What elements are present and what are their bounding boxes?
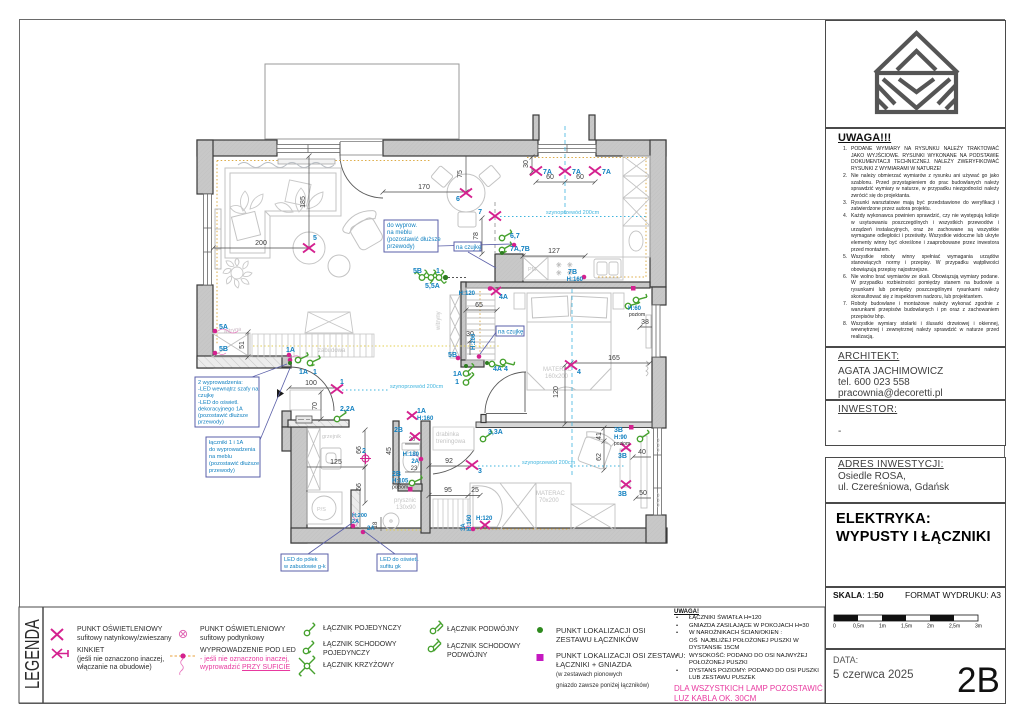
svg-text:30: 30 [523,160,530,168]
svg-text:do wyprow.: do wyprow. [387,223,417,229]
svg-text:51: 51 [239,341,246,349]
svg-text:66: 66 [356,483,363,491]
svg-text:1: 1 [340,379,344,386]
svg-text:1: 1 [436,268,440,275]
svg-text:2B: 2B [392,471,401,478]
svg-text:łączniki 1 i 1A: łączniki 1 i 1A [209,440,243,446]
svg-text:2m: 2m [927,624,934,630]
svg-text:5B: 5B [448,352,457,359]
svg-text:H:160: H:160 [417,416,434,422]
svg-text:czujkę: czujkę [198,393,214,399]
svg-text:4A: 4A [493,366,502,373]
svg-text:50: 50 [639,490,647,497]
svg-text:na czujkę: na czujkę [456,245,482,251]
svg-text:1A: 1A [417,408,426,415]
svg-text:1A: 1A [299,369,308,376]
svg-text:H:200: H:200 [471,333,477,350]
svg-text:1A: 1A [453,371,462,378]
svg-text:H:160: H:160 [567,277,584,283]
svg-text:(pozostawić dłuższe: (pozostawić dłuższe [198,413,248,419]
svg-text:2 wyprowadzenia:: 2 wyprowadzenia: [198,380,243,386]
svg-text:7A,7B: 7A,7B [510,246,530,253]
svg-text:1A: 1A [286,347,295,354]
svg-text:170: 170 [418,184,430,191]
svg-text:drabinka: drabinka [436,432,460,438]
svg-text:w zabudowie g-k: w zabudowie g-k [283,564,326,570]
svg-text:185: 185 [300,196,307,208]
svg-text:2A: 2A [352,519,359,525]
svg-text:LEGENDA: LEGENDA [21,619,44,689]
svg-text:P/S: P/S [317,507,326,513]
svg-text:120: 120 [553,386,560,398]
svg-text:przewody): przewody) [387,244,415,250]
svg-text:4A: 4A [499,294,508,301]
svg-text:H:120: H:120 [476,516,493,522]
svg-text:na meblu: na meblu [387,230,412,236]
svg-text:2,5m: 2,5m [949,624,960,630]
svg-text:45: 45 [386,447,393,455]
svg-text:5: 5 [313,235,317,242]
svg-text:7A: 7A [572,169,581,176]
svg-text:szynoprzewód 200cm: szynoprzewód 200cm [546,210,600,216]
svg-text:zabudowa: zabudowa [318,348,346,354]
svg-text:3,3A: 3,3A [488,429,503,436]
svg-text:7A: 7A [543,169,552,176]
svg-text:0: 0 [833,624,836,630]
svg-text:H:120: H:120 [459,291,476,297]
svg-text:4: 4 [577,369,581,376]
svg-text:przewody): przewody) [209,468,235,474]
svg-text:na meblu: na meblu [209,454,232,460]
svg-text:2B: 2B [394,427,403,434]
svg-text:125: 125 [330,459,342,466]
svg-text:7B: 7B [568,269,577,276]
svg-text:szynoprzewód 200cm: szynoprzewód 200cm [522,460,576,466]
svg-text:38: 38 [641,319,649,326]
svg-text:7: 7 [478,209,482,216]
svg-text:23: 23 [411,466,418,472]
svg-text:70: 70 [312,402,319,410]
svg-text:1,5m: 1,5m [901,624,912,630]
svg-text:127: 127 [548,248,560,255]
svg-text:H:160: H:160 [467,514,473,531]
svg-text:treningowa: treningowa [436,439,466,445]
svg-text:poziom: poziom [629,312,645,318]
svg-text:3m: 3m [975,624,982,630]
svg-text:1: 1 [313,369,317,376]
svg-text:H:180: H:180 [403,452,420,458]
svg-text:4: 4 [504,366,508,373]
svg-text:200: 200 [255,240,267,247]
svg-text:3B: 3B [618,491,627,498]
svg-text:(pozostawić dłuższe: (pozostawić dłuższe [387,237,441,243]
svg-text:1m: 1m [879,624,886,630]
svg-text:2A: 2A [411,459,419,465]
svg-text:3B: 3B [618,453,627,460]
svg-text:LED do oświetl.: LED do oświetl. [380,557,419,563]
svg-text:prysznic: prysznic [394,498,416,504]
svg-text:LED do półek: LED do półek [284,557,318,563]
svg-text:na czujkę: na czujkę [498,330,524,336]
svg-text:przewody): przewody) [198,420,224,426]
svg-text:5,5A: 5,5A [425,283,440,290]
svg-text:dekoracyjnego 1A: dekoracyjnego 1A [198,406,243,412]
svg-text:2,2A: 2,2A [340,406,355,413]
svg-text:5A: 5A [219,324,228,331]
svg-text:poziom: poziom [614,441,630,447]
svg-text:95: 95 [444,487,452,494]
svg-text:-LED do oświetl.: -LED do oświetl. [198,400,239,406]
svg-text:2: 2 [362,448,366,455]
svg-text:100: 100 [305,380,317,387]
svg-text:3: 3 [478,468,482,475]
svg-text:130x90: 130x90 [396,505,416,511]
svg-text:do wyprowadzenia: do wyprowadzenia [209,447,256,453]
svg-text:MATERAC: MATERAC [536,491,566,497]
svg-text:6: 6 [456,196,460,203]
svg-text:78: 78 [473,232,480,240]
svg-text:PM: PM [528,267,537,273]
svg-text:62: 62 [596,453,603,461]
svg-text:92: 92 [445,458,453,465]
svg-text:0,5m: 0,5m [853,624,864,630]
svg-text:5B: 5B [413,268,422,275]
svg-text:75: 75 [457,170,464,178]
svg-text:1: 1 [455,379,459,386]
svg-text:165: 165 [608,355,620,362]
svg-text:25: 25 [471,487,479,494]
svg-text:6,7: 6,7 [510,233,520,240]
svg-text:(pozostawić dłuższe: (pozostawić dłuższe [209,461,259,467]
svg-text:40: 40 [638,449,646,456]
svg-text:witryny: witryny [436,311,442,331]
svg-text:poziom: poziom [392,485,408,491]
svg-text:grzejnik: grzejnik [322,434,341,440]
svg-text:70x200: 70x200 [539,498,559,504]
svg-text:3B: 3B [614,427,623,434]
svg-text:7A: 7A [602,169,611,176]
svg-text:szynoprzewód 200cm: szynoprzewód 200cm [390,384,444,390]
svg-text:sufitu gk: sufitu gk [380,564,401,570]
svg-text:5B: 5B [219,346,228,353]
svg-text:-LED wewnątrz szafy na: -LED wewnątrz szafy na [198,387,259,393]
svg-text:65: 65 [475,302,483,309]
svg-text:41: 41 [596,432,603,440]
svg-text:2A: 2A [367,526,375,532]
